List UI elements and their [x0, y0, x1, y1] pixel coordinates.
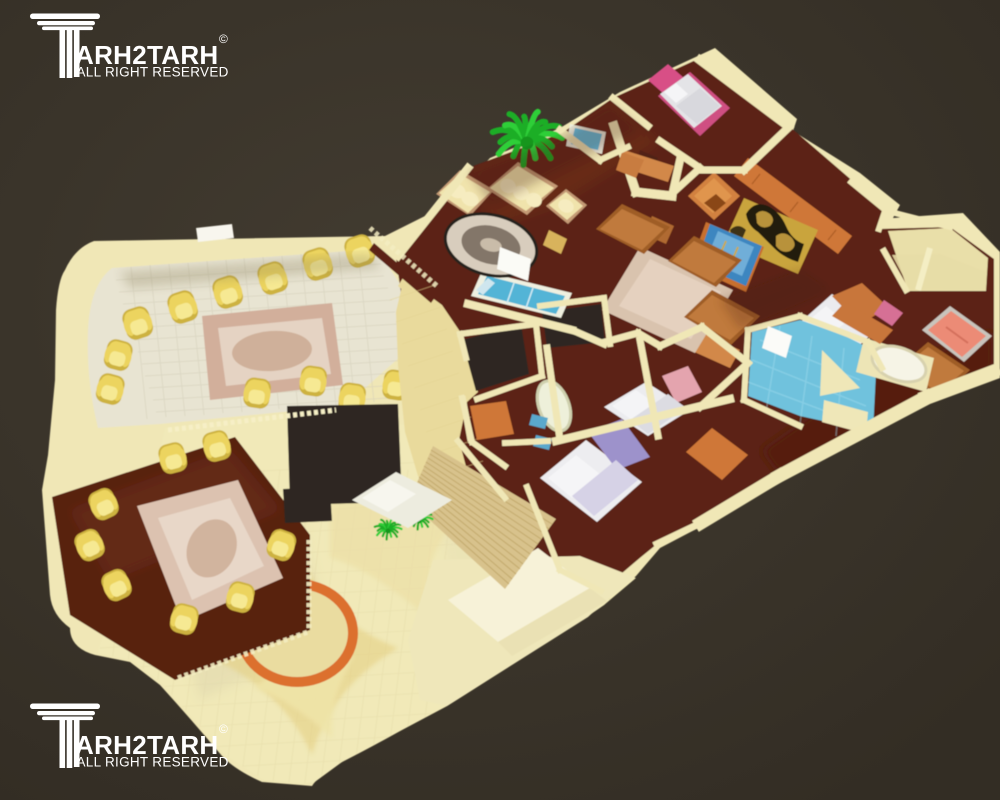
svg-text:ALL RIGHT RESERVED: ALL RIGHT RESERVED: [77, 755, 229, 770]
svg-text:ALL RIGHT RESERVED: ALL RIGHT RESERVED: [77, 65, 229, 80]
svg-text:©: ©: [219, 722, 228, 736]
svg-text:©: ©: [219, 32, 228, 46]
